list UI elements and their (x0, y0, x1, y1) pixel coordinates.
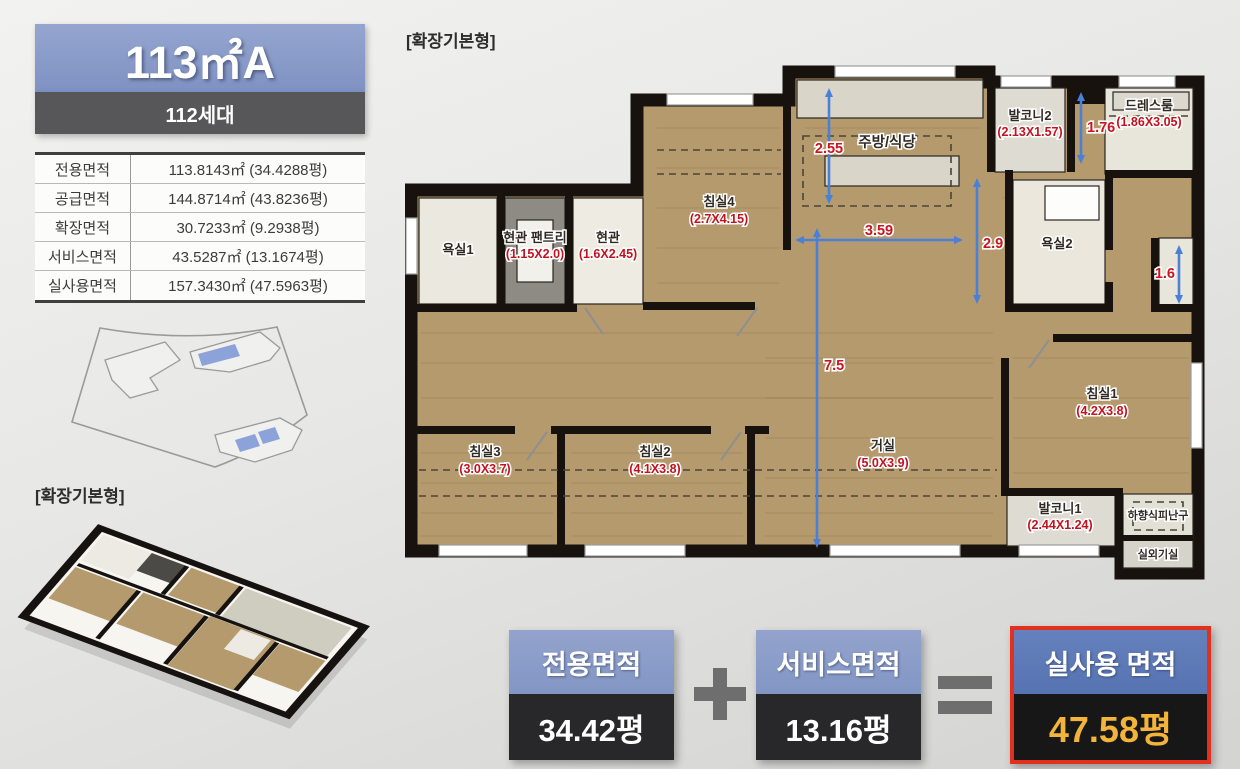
building-outline (215, 418, 302, 462)
summary-actual-area-highlighted: 실사용 면적 47.58평 (1010, 626, 1211, 764)
dims-pantry: (1.15X2.0) (506, 247, 564, 261)
dims-bedroom4: (2.7X4.15) (690, 212, 748, 226)
label-bath2: 욕실2 (1041, 236, 1072, 251)
row-label: 서비스면적 (35, 242, 131, 270)
label-balcony2: 발코니2 (1008, 108, 1051, 123)
dims-entrance: (1.6X2.45) (579, 247, 637, 261)
summary-value: 13.16평 (756, 694, 921, 760)
summary-title: 전용면적 (509, 630, 674, 694)
dims-balcony2: (2.13X1.57) (997, 125, 1062, 139)
label-entrance: 현관 (596, 230, 620, 245)
dim-living-height: 7.5 (824, 358, 844, 374)
row-label: 공급면적 (35, 184, 131, 212)
table-row: 실사용면적 157.3430㎡ (47.5963평) (35, 271, 365, 300)
label-dressroom: 드레스룸 (1125, 98, 1173, 113)
plus-bar-v (713, 668, 727, 720)
table-row: 전용면적 113.8143㎡ (34.4288평) (35, 155, 365, 184)
kitchen-island (825, 156, 959, 186)
row-value: 157.3430㎡ (47.5963평) (131, 271, 365, 300)
row-value: 43.5287㎡ (13.1674평) (131, 242, 365, 270)
equals-bar-top (938, 676, 992, 689)
row-label: 확장면적 (35, 213, 131, 241)
dims-bedroom3: (3.0X3.7) (459, 462, 510, 476)
label-escape-hatch: 하향식피난구 (1128, 508, 1189, 522)
label-bedroom1: 침실1 (1086, 386, 1117, 401)
dim-closet-height: 1.6 (1155, 266, 1175, 282)
table-row: 서비스면적 43.5287㎡ (13.1674평) (35, 242, 365, 271)
row-value: 30.7233㎡ (9.2938평) (131, 213, 365, 241)
equals-bar-bottom (938, 701, 992, 714)
dims-bedroom2: (4.1X3.8) (629, 462, 680, 476)
summary-exclusive-area: 전용면적 34.42평 (509, 630, 674, 760)
table-row: 공급면적 144.8714㎡ (43.8236평) (35, 184, 365, 213)
label-balcony1: 발코니1 (1038, 501, 1081, 516)
unit-count-text: 112세대 (165, 99, 234, 128)
label-outdoor-unit: 실외기실 (1138, 547, 1178, 561)
dim-hall-width: 3.59 (865, 223, 893, 239)
dims-dressroom: (1.86X3.05) (1116, 115, 1181, 129)
summary-value: 34.42평 (509, 694, 674, 760)
label-living: 거실 (871, 438, 895, 453)
dims-balcony1: (2.44X1.24) (1027, 518, 1092, 532)
row-value: 144.8714㎡ (43.8236평) (131, 184, 365, 212)
dim-hall-height: 2.9 (983, 236, 1003, 252)
site-plan-map (30, 300, 380, 480)
building-outline (105, 342, 180, 398)
equals-icon (938, 676, 992, 714)
unit-count-bar: 112세대 (35, 92, 365, 134)
label-kitchen: 주방/식당 (858, 133, 916, 151)
plus-icon (694, 668, 746, 720)
label-bedroom3: 침실3 (469, 444, 500, 459)
kitchen-counter (797, 80, 983, 118)
table-row: 확장면적 30.7233㎡ (9.2938평) (35, 213, 365, 242)
area-spec-table: 전용면적 113.8143㎡ (34.4288평) 공급면적 144.8714㎡… (35, 152, 365, 303)
label-bedroom2: 침실2 (639, 444, 670, 459)
bathtub (1045, 186, 1099, 220)
row-value: 113.8143㎡ (34.4288평) (131, 155, 365, 183)
unit-type-title: 113㎡A (35, 24, 365, 92)
dims-living: (5.0X3.9) (857, 456, 908, 470)
floorplan-brochure-page: { "left_panel": { "title": "113㎡A", "uni… (0, 0, 1240, 769)
row-label: 실사용면적 (35, 271, 131, 300)
summary-service-area: 서비스면적 13.16평 (756, 630, 921, 760)
label-bath1: 욕실1 (442, 242, 473, 257)
summary-value: 47.58평 (1014, 694, 1207, 760)
label-pantry: 현관 팬트리 (503, 230, 566, 245)
label-bedroom4: 침실4 (703, 194, 735, 209)
unit-type-title-text: 113㎡A (125, 26, 275, 91)
dim-balcony2-height: 1.76 (1087, 120, 1115, 136)
iso-3d-floorplan (5, 498, 385, 768)
dims-bedroom1: (4.2X3.8) (1076, 404, 1127, 418)
plan-type-label: [확장기본형] (406, 27, 496, 52)
iso-plan-group (15, 528, 374, 729)
summary-title: 서비스면적 (756, 630, 921, 694)
row-label: 전용면적 (35, 155, 131, 183)
summary-title: 실사용 면적 (1014, 630, 1207, 694)
main-floorplan: 2.55 3.59 2.9 7.5 1.76 1.6 욕실1 현관 팬트리 (1… (405, 58, 1205, 598)
dim-kitchen-height: 2.55 (815, 141, 843, 157)
